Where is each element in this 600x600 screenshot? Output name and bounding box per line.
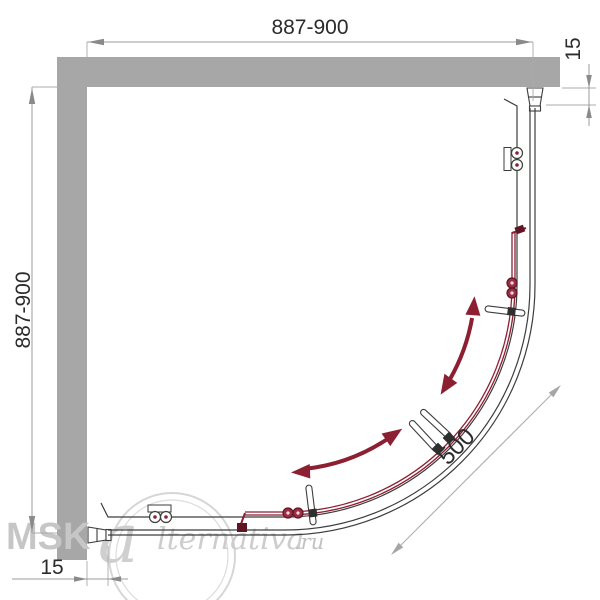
lower-slide-arrow-head-left bbox=[291, 464, 310, 479]
upper-handle-bar bbox=[485, 306, 525, 317]
dimension-bottom-offset-label: 15 bbox=[40, 556, 63, 579]
upper-handle-nut bbox=[507, 307, 516, 316]
shower-enclosure-diagram: MSK- a lternativa .ru bbox=[0, 0, 600, 600]
glass-and-track bbox=[101, 99, 535, 535]
dimension-left-height: 887-900 bbox=[12, 87, 57, 533]
roller-bottom bbox=[148, 505, 172, 523]
walls bbox=[57, 57, 560, 560]
handle-nuts bbox=[309, 307, 516, 517]
diagram-canvas: MSK- a lternativa .ru bbox=[0, 0, 600, 600]
door-glass-line-2 bbox=[245, 232, 512, 512]
dimension-left-height-label: 887-900 bbox=[12, 271, 35, 348]
door-end-blocks bbox=[237, 225, 525, 532]
dimension-right-offset-label: 15 bbox=[562, 37, 585, 60]
door-top-end-block bbox=[514, 225, 525, 235]
lower-slide-arrow-arc bbox=[304, 438, 388, 469]
lower-slide-arrow-head-right bbox=[382, 429, 403, 446]
lower-handle-nut bbox=[309, 509, 318, 518]
door-bottom-end-block bbox=[237, 523, 247, 532]
left-wall bbox=[57, 57, 87, 560]
upper-slide-arrow-head-upper bbox=[465, 296, 480, 316]
wall-profiles bbox=[88, 88, 543, 543]
roller-top bbox=[504, 148, 523, 171]
door-glass-line-1 bbox=[245, 232, 515, 515]
lower-handle-bar bbox=[306, 485, 317, 525]
sliding-doors bbox=[241, 228, 526, 524]
dimension-top-width-label: 887-900 bbox=[271, 16, 348, 39]
upper-slide-arrow-arc bbox=[450, 318, 473, 380]
top-wall bbox=[57, 57, 560, 87]
watermark-script: lternativa bbox=[157, 522, 304, 557]
upper-slide-arrow-head-lower bbox=[441, 374, 458, 395]
